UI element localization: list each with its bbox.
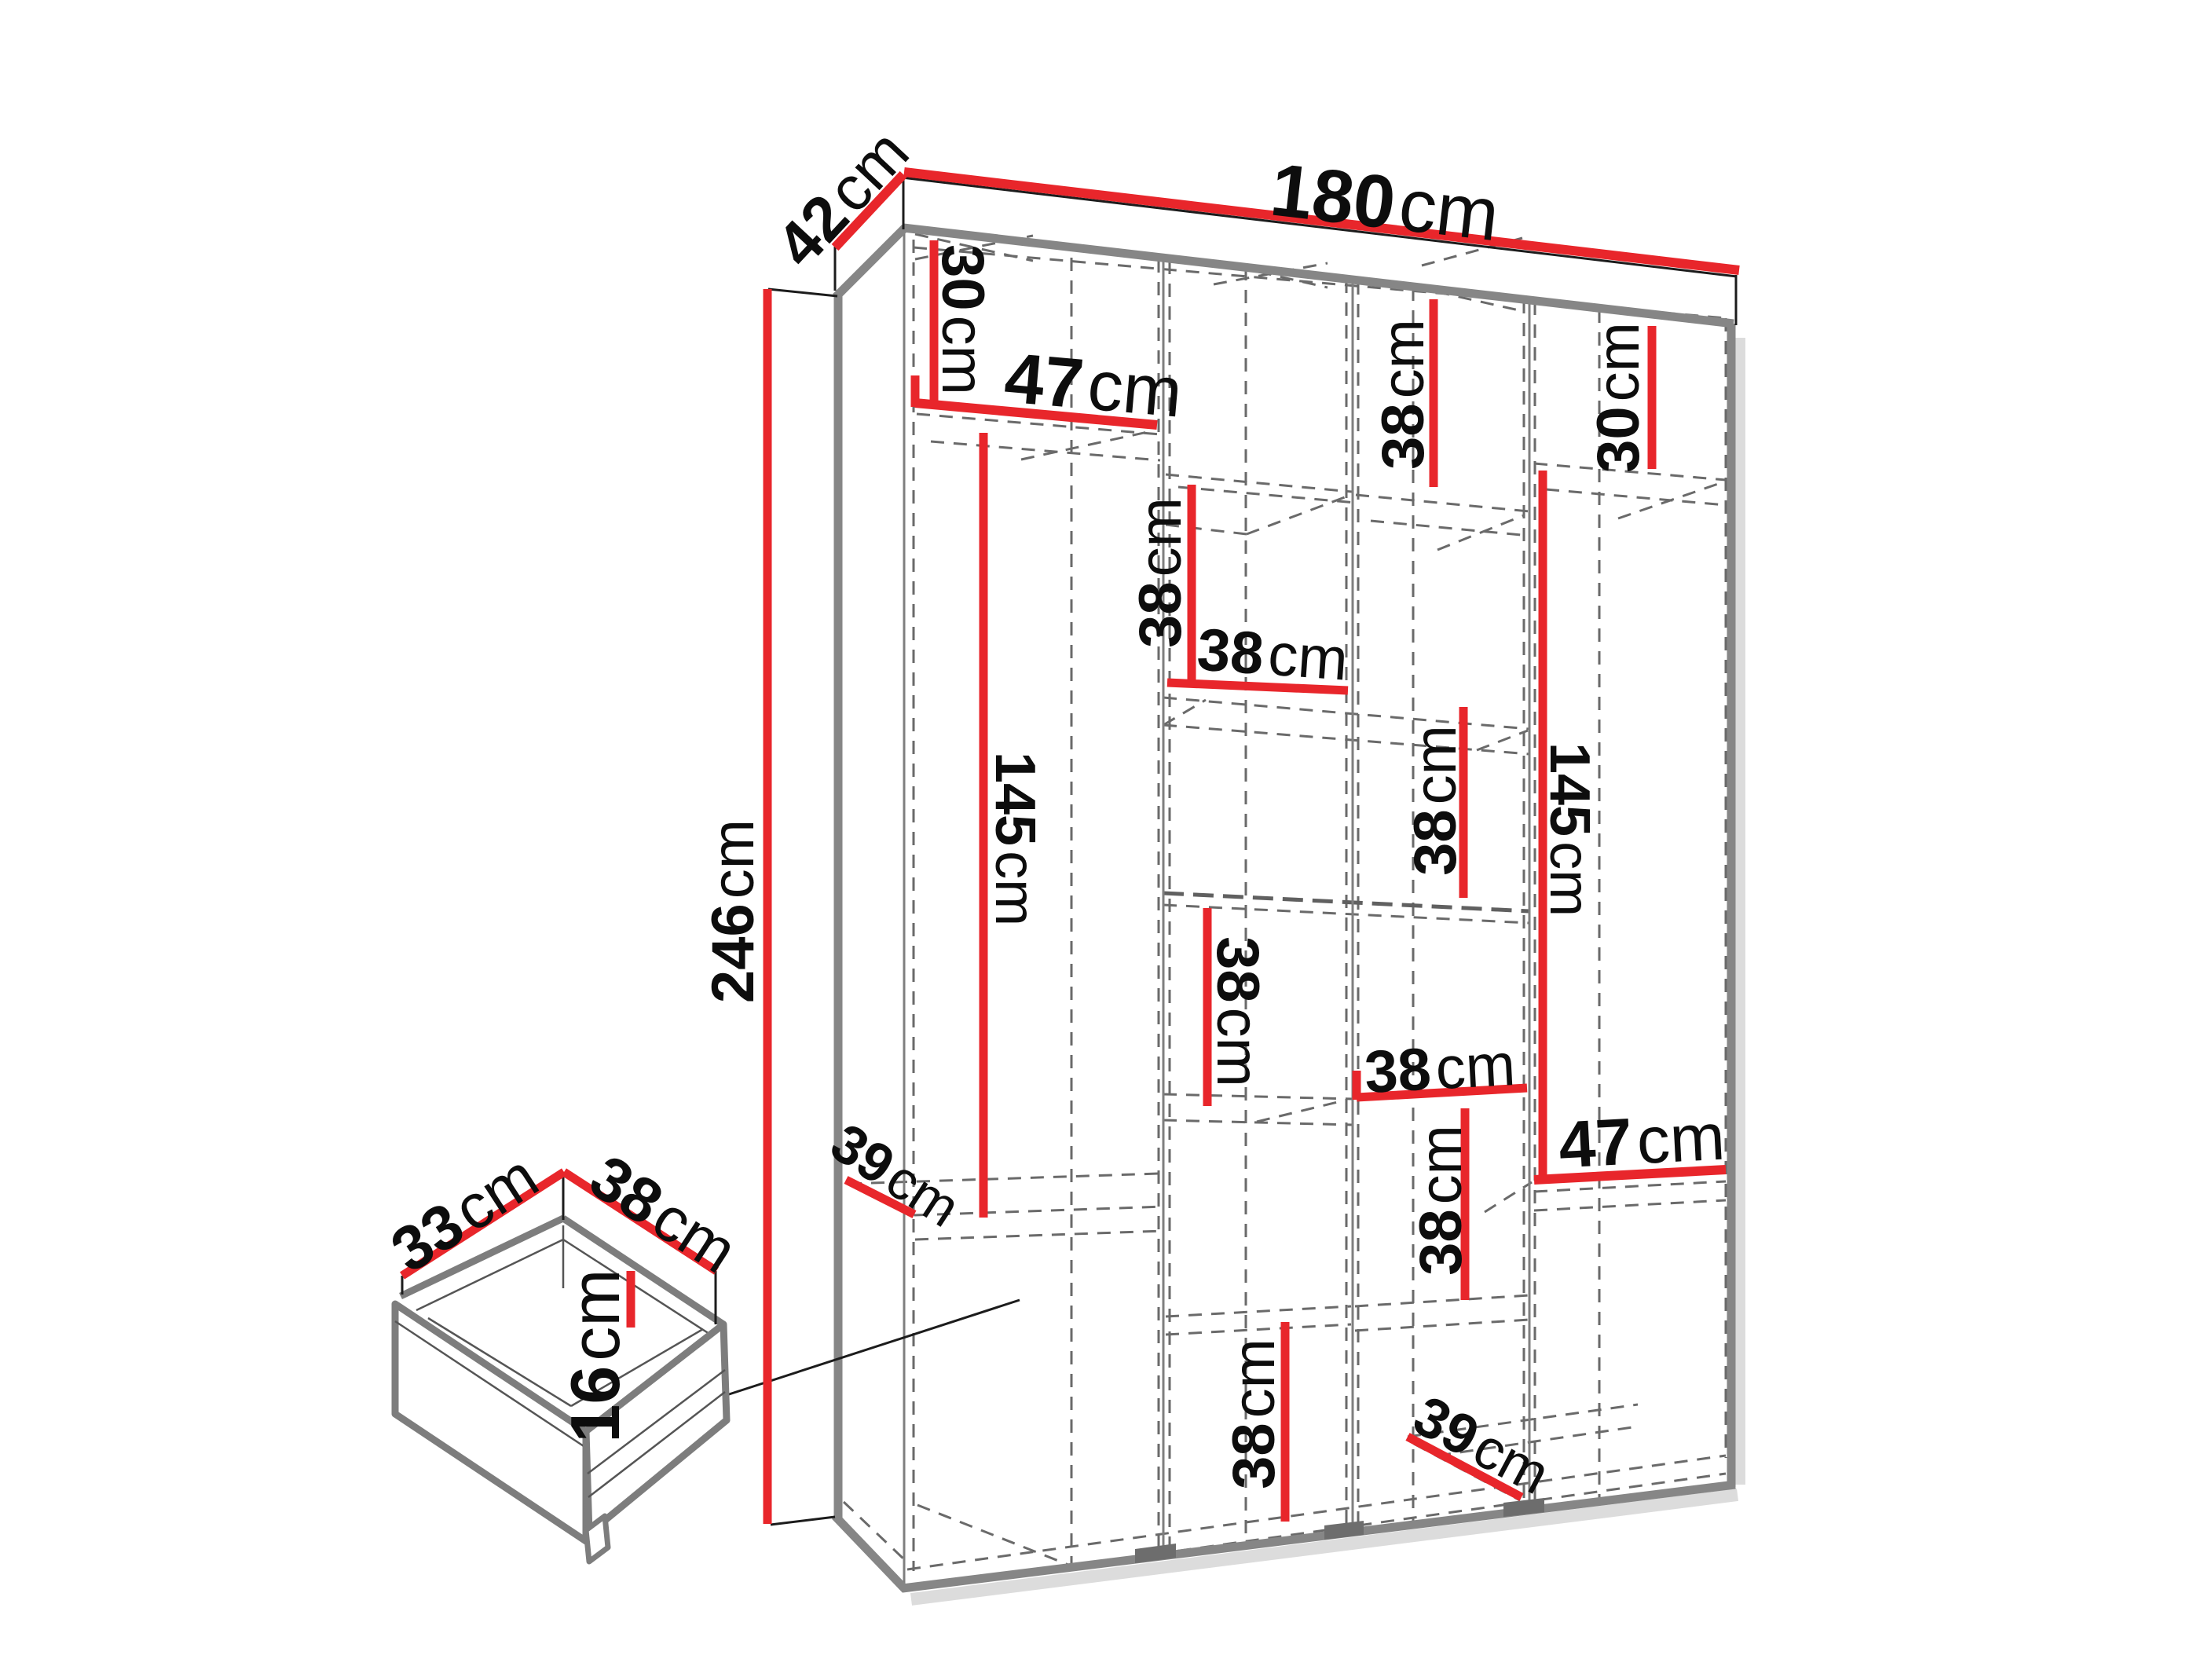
svg-text:38cm: 38cm: [1221, 1339, 1287, 1489]
svg-text:38cm: 38cm: [1195, 616, 1350, 693]
svg-text:16cm: 16cm: [556, 1269, 634, 1442]
svg-text:145cm: 145cm: [1538, 742, 1601, 917]
svg-text:38cm: 38cm: [1205, 936, 1272, 1087]
svg-text:145cm: 145cm: [983, 752, 1046, 926]
svg-text:30cm: 30cm: [930, 244, 997, 395]
svg-text:38cm: 38cm: [1370, 319, 1437, 470]
svg-text:38cm: 38cm: [1408, 1125, 1474, 1276]
svg-text:47cm: 47cm: [1557, 1100, 1727, 1182]
svg-text:30cm: 30cm: [1585, 322, 1652, 473]
svg-text:246cm: 246cm: [700, 819, 767, 1003]
svg-text:38cm: 38cm: [1127, 497, 1194, 648]
svg-text:38cm: 38cm: [1363, 1031, 1517, 1106]
svg-text:47cm: 47cm: [1002, 339, 1185, 432]
svg-text:38cm: 38cm: [1402, 725, 1469, 876]
